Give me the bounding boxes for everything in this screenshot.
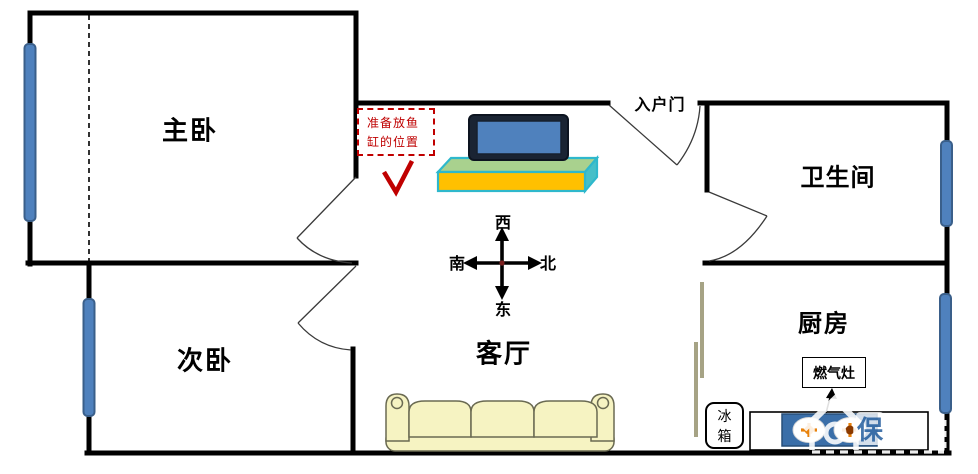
second-bedroom-door-icon <box>298 266 356 350</box>
entrance-door-label: 入户门 <box>634 91 685 115</box>
floorplan-canvas: 主卧 次卧 客厅 卫生间 厨房 入户门 西 东 南 北 准备放鱼 缸的位置 燃气… <box>0 0 978 474</box>
living-room-label: 客厅 <box>476 334 532 371</box>
bathroom-door-icon <box>709 192 767 261</box>
bathroom-label: 卫生间 <box>801 158 876 193</box>
kitchen-sliding-door-icon <box>696 282 702 437</box>
second-bedroom-label: 次卧 <box>177 341 233 378</box>
watermark-badge-char: 保 <box>857 410 883 447</box>
watermark-badge: 保 <box>856 412 884 445</box>
tv-icon <box>469 115 568 160</box>
compass-east-label: 东 <box>495 296 511 320</box>
fish-tank-note: 准备放鱼 缸的位置 <box>357 108 435 156</box>
compass-south-label: 南 <box>449 250 465 274</box>
compass-icon <box>463 227 542 300</box>
compass-north-label: 北 <box>540 250 556 274</box>
master-window <box>25 44 36 221</box>
tv-stand-icon <box>438 158 597 191</box>
master-door-icon <box>297 177 356 263</box>
fish-tank-note-line2: 缸的位置 <box>367 133 433 152</box>
master-bedroom-label: 主卧 <box>162 111 218 148</box>
floorplan-drawing <box>0 0 978 474</box>
fish-tank-note-line1: 准备放鱼 <box>367 114 433 133</box>
gas-stove-label-box: 燃气灶 <box>802 357 866 388</box>
fridge-label: 冰箱 <box>717 406 733 446</box>
bathroom-window <box>941 141 952 226</box>
second-bedroom-window <box>84 299 95 416</box>
checkmark-icon <box>384 161 412 192</box>
sofa-icon <box>386 394 614 451</box>
gas-stove-label: 燃气灶 <box>813 363 855 383</box>
watermark-house-icon <box>804 399 863 450</box>
kitchen-window <box>940 294 951 413</box>
fridge: 冰箱 <box>705 402 744 449</box>
kitchen-label: 厨房 <box>798 304 850 339</box>
compass-west-label: 西 <box>495 209 511 233</box>
